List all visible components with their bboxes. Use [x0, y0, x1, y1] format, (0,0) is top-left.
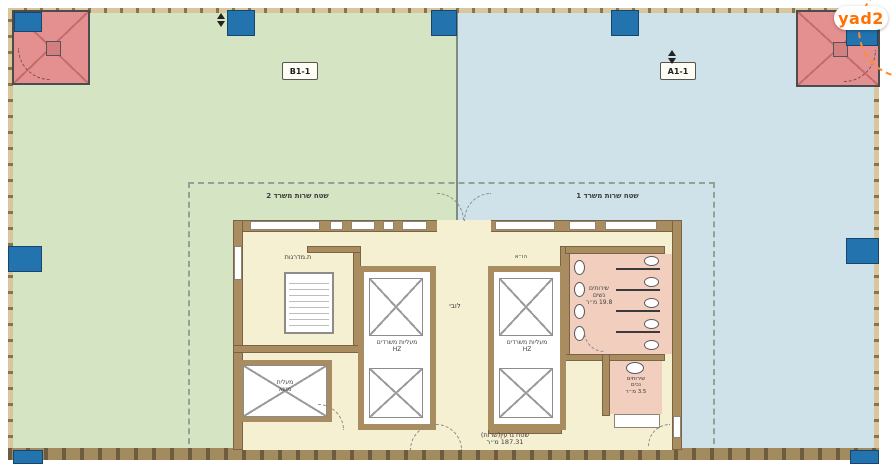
column — [850, 450, 879, 464]
stair-steps — [289, 278, 329, 328]
double-arrow-marker-icon — [668, 50, 676, 64]
hvac-label: הו״א — [508, 254, 534, 260]
stair-flight — [284, 272, 334, 334]
elevator-shaft — [369, 278, 423, 336]
elevator-bank-left: מעליות משרדים HZ — [358, 266, 436, 430]
freight-elevator-label: מעלית משא — [243, 380, 327, 394]
service-area-label-office1: שטח שרות משרד 1 — [540, 192, 675, 200]
elevator-label-line2: HZ — [494, 347, 560, 354]
core-area-label: שטח גרעין(שרות) 187.31 מ״ר — [445, 432, 565, 447]
elevator-shaft — [499, 278, 553, 336]
stall-partition — [616, 268, 660, 270]
stall-partition — [616, 331, 660, 333]
column — [431, 10, 457, 36]
window — [330, 221, 343, 230]
wc-women-label: שירותים נשים 19.8 מ״ר — [578, 286, 620, 307]
elevator-label: מעליות משרדים HZ — [364, 340, 430, 354]
window — [614, 414, 660, 428]
wc-accessible-label: שירותים נכים 3.5 מ״ר — [612, 376, 660, 395]
double-arrow-marker-icon — [217, 13, 225, 27]
unit-label-b1-1: B1-1 — [282, 62, 318, 80]
toilet — [574, 260, 585, 275]
toilet — [644, 319, 659, 329]
partition-wall — [307, 246, 361, 253]
toilet — [644, 277, 659, 287]
arrow-down-icon — [668, 58, 676, 64]
window — [402, 221, 427, 230]
stairwell-label: ת.מדרגות — [258, 254, 338, 261]
service-area-label-office2: שטח שרות משרד 2 — [230, 192, 365, 200]
unit-label-a1-1: A1-1 — [660, 62, 696, 80]
column — [14, 12, 42, 32]
arrow-up-icon — [217, 13, 225, 19]
core-area-line2: 187.31 מ״ר — [445, 439, 565, 446]
lobby-label: לובי — [440, 302, 470, 310]
window — [234, 246, 242, 280]
floor-plan: ת.מדרגות מעליות משרדים HZ מעליות משרדים … — [0, 0, 892, 466]
arrow-up-icon — [668, 50, 676, 56]
column — [227, 10, 255, 36]
stall-partition — [616, 289, 660, 291]
wc-women-area: 19.8 מ״ר — [578, 300, 620, 307]
yad2-logo[interactable]: yad2 — [834, 6, 888, 30]
freight-label-line2: משא — [243, 387, 327, 394]
column — [846, 238, 879, 264]
elevator-label-line2: HZ — [364, 347, 430, 354]
arrow-down-icon — [217, 21, 225, 27]
partition-wall — [602, 354, 610, 416]
column — [13, 450, 43, 464]
toilet — [644, 340, 659, 350]
column — [8, 246, 42, 272]
window — [351, 221, 375, 230]
elevator-shaft — [369, 368, 423, 418]
column — [611, 10, 639, 36]
elevator-bank-right: מעליות משרדים HZ — [488, 266, 566, 430]
window — [383, 221, 394, 230]
elevator-shaft — [499, 368, 553, 418]
partition-wall — [565, 246, 665, 254]
door-arc — [18, 48, 50, 80]
toilet — [644, 298, 659, 308]
core-entrance-gap — [437, 220, 491, 232]
toilet — [644, 256, 659, 266]
partition-wall — [565, 354, 665, 361]
window — [673, 416, 681, 438]
wc-accessible-area: 3.5 מ״ר — [612, 389, 660, 395]
window — [495, 221, 555, 230]
elevator-label: מעליות משרדים HZ — [494, 340, 560, 354]
toilet — [626, 362, 644, 374]
window — [250, 221, 320, 230]
stall-partition — [616, 310, 660, 312]
partition-wall — [233, 345, 361, 353]
window — [605, 221, 657, 230]
window — [569, 221, 596, 230]
